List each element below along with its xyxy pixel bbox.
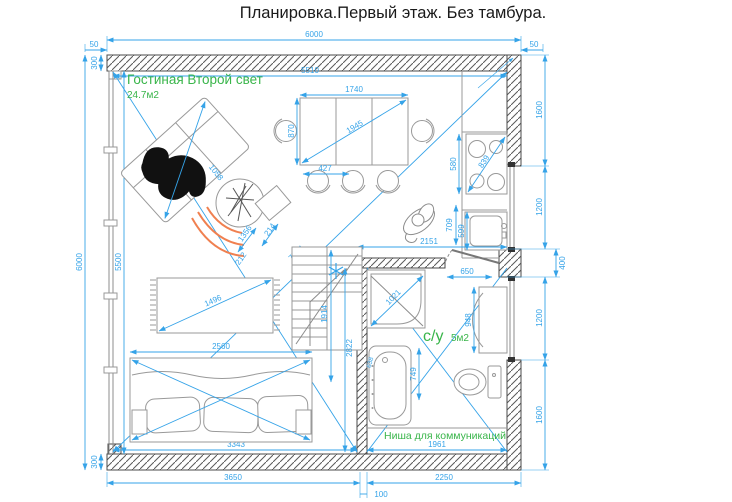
bathroom-label: с/у xyxy=(423,328,443,345)
bathroom-area: 5м2 xyxy=(451,333,469,344)
toilet xyxy=(454,366,501,398)
dim-right-1600-bottom: 1600 xyxy=(535,406,544,424)
dim-top-wall-300: 300 xyxy=(90,56,99,70)
dim-top-left-50: 50 xyxy=(90,40,99,49)
dim-right-400: 400 xyxy=(558,256,567,270)
wall-step-bottom-left xyxy=(108,444,121,454)
rectangular-rug: 1496 xyxy=(150,278,280,333)
living-room-area: 24.7м2 xyxy=(127,90,159,101)
floor-plan-drawing: Планировка.Первый этаж. Без тамбура. xyxy=(0,0,732,502)
bathtub: 749 638 xyxy=(366,346,419,425)
dim-gap-214: 214 xyxy=(262,221,277,238)
living-room-label: Гостиная Второй свет xyxy=(127,72,263,87)
dim-table-depth: 870 xyxy=(287,124,296,138)
floor-plan-page: Планировка.Первый этаж. Без тамбура. xyxy=(0,0,732,502)
dim-left-height: 6000 xyxy=(75,253,84,271)
wall-right-lower xyxy=(507,360,521,470)
dim-stove-width: 580 xyxy=(449,157,458,171)
dim-gap-212: 212 xyxy=(233,250,248,267)
dim-tub-length: 749 xyxy=(409,367,418,381)
dim-sink-depth: 599 xyxy=(457,224,466,238)
dim-left-inner: 5500 xyxy=(114,253,123,271)
window-right-upper xyxy=(510,166,514,249)
wall-bottom xyxy=(107,454,521,470)
dim-bottom-wall-300: 300 xyxy=(90,455,99,469)
dim-bottom-100: 100 xyxy=(374,490,388,499)
kitchen-sink xyxy=(465,212,507,250)
dim-door-opening: 650 xyxy=(460,267,474,276)
dim-table-width: 1740 xyxy=(345,85,363,94)
dim-bottom-3650: 3650 xyxy=(224,473,242,482)
dim-person-width: 709 xyxy=(445,218,454,232)
window-right-lower xyxy=(510,277,514,360)
dim-kitchen-run: 2151 xyxy=(420,237,438,246)
dim-chair-pitch: 427 xyxy=(318,164,332,173)
dim-top-inner: 5510 xyxy=(301,66,319,75)
dim-stair-height: 2822 xyxy=(345,339,354,357)
page-title: Планировка.Первый этаж. Без тамбура. xyxy=(240,4,547,22)
dim-top-width: 6000 xyxy=(305,30,323,39)
dim-stair-run: 1914 xyxy=(320,305,329,323)
wall-right-upper xyxy=(507,55,521,166)
dim-cabinet-height: 948 xyxy=(464,313,473,327)
wall-bathroom-top xyxy=(357,258,445,268)
shower-cabin: 1021 xyxy=(367,270,425,328)
dim-right-1600-top: 1600 xyxy=(535,101,544,119)
bath-cabinet: 948 xyxy=(464,287,507,353)
dim-right-1200-bottom: 1200 xyxy=(535,309,544,327)
sofa: 2560 xyxy=(130,342,312,442)
dining-table: 1740 870 1945 427 xyxy=(274,85,434,193)
dim-top-right-50: 50 xyxy=(530,40,539,49)
dim-bottom-2250: 2250 xyxy=(435,473,453,482)
niche-label: Ниша для коммуникаций xyxy=(384,430,506,442)
wall-right-stub xyxy=(499,249,521,277)
bathroom-door: 650 xyxy=(445,250,499,277)
dim-right-1200-top: 1200 xyxy=(535,198,544,216)
dim-sofa-width: 2560 xyxy=(212,342,230,351)
dims-left: 6000 5500 300 xyxy=(75,55,124,470)
